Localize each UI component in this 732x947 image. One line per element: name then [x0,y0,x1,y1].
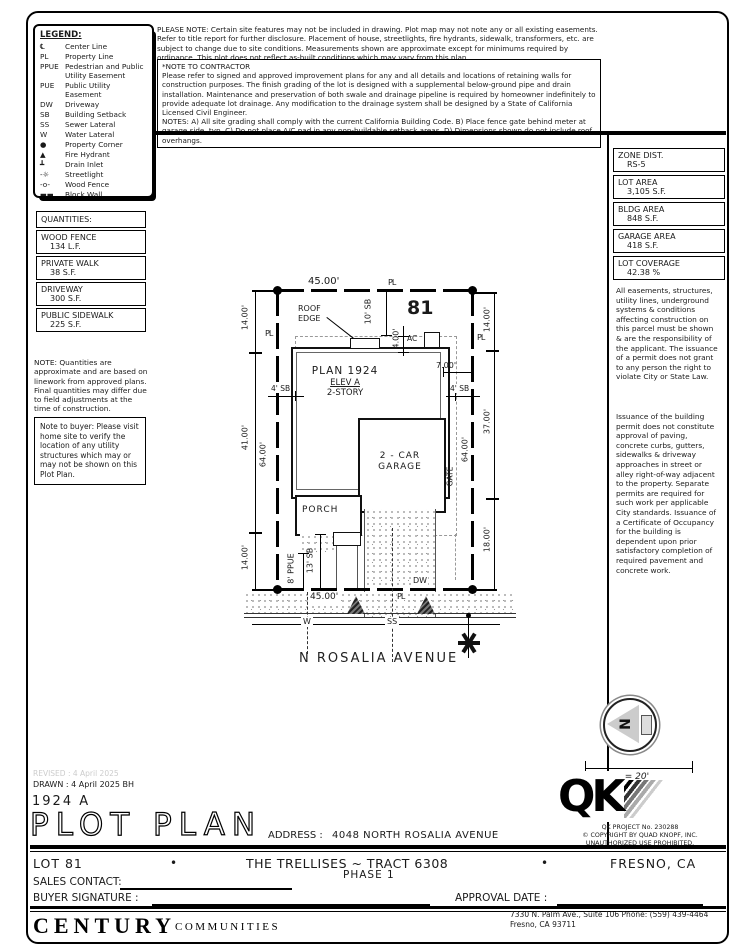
property-line-symbol: PL [40,52,65,61]
zone-row: LOT COVERAGE42.38 % [613,256,725,280]
office-address: 7330 N. Palm Ave., Suite 106 Phone: (559… [510,910,708,919]
legend-row: ┻Drain Inlet [40,160,147,169]
dim-tick [315,534,326,535]
please-note-text: PLEASE NOTE: Certain site features may n… [157,25,603,62]
dim-label-right-37: 37.00' [483,402,492,442]
zone-value: 3,105 S.F. [618,187,720,196]
legend-row: -o-Wood Fence [40,180,147,189]
legend-label: Property Corner [65,140,147,149]
city-label: FRESNO, CA [610,856,696,872]
dim-label-ppue: 8' PPUE [287,549,296,589]
water-symbol: W [40,130,65,139]
quantity-label: PRIVATE WALK [41,259,141,268]
driveway-label: DW [412,576,428,586]
legend-label: Fire Hydrant [65,150,147,159]
front-step [333,532,361,546]
zone-label: LOT COVERAGE [618,259,720,268]
roof-edge-bump [350,338,380,349]
property-line-bottom [278,588,473,591]
dim-tick [295,391,296,401]
legend-label: Water Lateral [65,130,147,139]
dim-label-left-14a: 14.00' [241,298,250,338]
dim-label-left-41: 41.00' [241,418,250,458]
header-separator-line [156,131,726,135]
separator-bullet: • [170,856,177,871]
legend-row: -☼Streetlight [40,170,147,179]
street-centerline [392,528,393,662]
buyer-signature-label: BUYER SIGNATURE : [33,892,139,905]
property-line-left [276,290,279,590]
curb-line [244,613,516,614]
legend-row: WWater Lateral [40,130,147,139]
sales-contact-label: SALES CONTACT: [33,876,122,889]
legend-row: PPUEPedestrian and Public Utility Easeme… [40,62,147,80]
sheet-title: PLOT PLAN [30,806,262,845]
legend-row: PUEPublic Utility Easement [40,81,147,99]
revised-line: REVISED : 4 April 2025 [33,769,119,778]
dim-label-sb4-right: 4' SB [450,384,469,393]
property-corner [468,286,477,295]
sewer-symbol: SS [40,120,65,129]
sb13-dim-line [320,534,321,589]
property-line-top [278,289,473,292]
ac-label: AC [407,334,417,343]
sb10-dim-line [386,291,387,336]
legend-label: Driveway [65,100,147,109]
dim-label-sb10: 10' SB [364,292,373,332]
plan-story: 2-STORY [300,388,390,399]
zone-label: ZONE DIST. [618,151,720,160]
permit-note: Issuance of the building permit does not… [616,412,720,575]
zone-label: BLDG AREA [618,205,720,214]
zone-value: RS-5 [618,160,720,169]
legend-row: SSSewer Lateral [40,120,147,129]
dim-tick [249,352,262,354]
sb4-left-dim-line [268,396,304,397]
dim-tick [381,291,392,292]
quantity-value: 38 S.F. [41,268,141,277]
sewer-main-line [252,624,500,625]
porch-label: PORCH [302,505,338,516]
pue-symbol: PUE [40,81,65,99]
legend-label: Building Setback [65,110,147,119]
legend-label: Block Wall [65,190,147,198]
drain-inlet-icon: ┻ [40,160,65,169]
dim-label-top: 45.00' [308,276,339,289]
pl-marker: PL [265,329,272,339]
legend-row: ℄Center Line [40,42,147,51]
office-city: Fresno, CA 93711 [510,920,576,929]
legend-label: Public Utility Easement [65,81,147,99]
legend-label: Streetlight [65,170,147,179]
zone-row: BLDG AREA848 S.F. [613,202,725,226]
quantities-title: QUANTITIES: [36,211,146,228]
legend-row: ●Property Corner [40,140,147,149]
driveway-symbol: DW [40,100,65,109]
quantities-table: QUANTITIES: WOOD FENCE134 L.F. PRIVATE W… [36,211,146,334]
ppue-symbol: PPUE [40,62,65,80]
dim-label-d7: 7.00' [436,361,456,371]
centerline-symbol: ℄ [40,42,65,51]
legend-label: Drain Inlet [65,160,147,169]
dim-label-left-64: 64.00' [259,435,268,475]
lot-number: 81 [407,297,433,321]
streetlight-base [466,613,471,618]
quantity-row: DRIVEWAY300 S.F. [36,282,146,306]
contractor-note-body: Please refer to signed and approved impr… [162,71,596,117]
dim-label-left-14b: 14.00' [241,538,250,578]
zone-label: GARAGE AREA [618,232,720,241]
dim-tick [471,367,472,377]
sales-contact-line [120,888,292,890]
dim-tick [486,498,499,500]
d7-dim-line [443,372,473,373]
legend-title: LEGEND: [40,30,147,40]
quantity-value: 134 L.F. [41,242,141,251]
ppue-dim-line [303,553,304,589]
quantity-row: WOOD FENCE134 L.F. [36,230,146,254]
dim-label-sb4-left: 4' SB [271,384,290,393]
quantity-value: 300 S.F. [41,294,141,303]
legend-row: PLProperty Line [40,52,147,61]
legend-row: ▲Fire Hydrant [40,150,147,159]
legend-label: Pedestrian and Public Utility Easement [65,62,147,80]
fire-hydrant-icon: ▲ [40,150,65,159]
legend-row: SBBuilding Setback [40,110,147,119]
dim-tick [472,391,473,401]
dim-label-bottom: 45.00' [308,592,340,603]
title-rule-thin [30,851,726,852]
quantity-row: PUBLIC SIDEWALK225 S.F. [36,308,146,332]
zone-label: LOT AREA [618,178,720,187]
buyer-note-text: Note to buyer: Please visit home site to… [40,422,140,480]
water-lateral-label: W [301,617,313,627]
north-letter: N [618,718,634,730]
dim-tick [473,292,497,294]
address-label: ADDRESS : [268,830,323,843]
qk-copyright2: UNAUTHORIZED USE PROHIBITED. [565,840,715,848]
pl-marker: PL [388,278,395,288]
roof-edge-label: ROOF EDGE [298,304,321,323]
dim-tick [252,290,278,292]
ac-unit [424,332,440,348]
dim-tick [381,335,392,336]
separator-bullet: • [541,856,548,871]
dim-line-left [255,290,256,590]
dim-label-right-64: 64.00' [461,430,470,470]
century-logo: CENTURY [33,912,176,940]
legend-label: Center Line [65,42,147,51]
property-corner-icon: ● [40,140,65,149]
quantity-value: 225 S.F. [41,320,141,329]
legend-label: Wood Fence [65,180,147,189]
drawn-line: DRAWN : 4 April 2025 BH [33,780,134,790]
quantity-label: DRIVEWAY [41,285,141,294]
communities-logo: COMMUNITIES [175,921,280,935]
public-sidewalk-concrete [244,592,516,613]
address-value: 4048 NORTH ROSALIA AVENUE [332,830,499,843]
legend-box: LEGEND: ℄Center Line PLProperty Line PPU… [33,24,154,198]
streetlight-icon: -☼ [40,170,65,179]
legend-row: ▬▬Block Wall [40,190,147,198]
legend-label: Sewer Lateral [65,120,147,129]
easements-note: All easements, structures, utility lines… [616,286,720,382]
dim-line-right [494,292,495,590]
qk-logo: QK [558,777,708,823]
qk-project-number: QK PROJECT No. 230288 [565,824,715,832]
plan-name: PLAN 1924 [300,365,390,378]
setback-symbol: SB [40,110,65,119]
quantity-label: PUBLIC SIDEWALK [41,311,141,320]
buyer-note-box: Note to buyer: Please visit home site to… [34,417,146,485]
qk-logo-text: QK [558,771,624,822]
sewer-lateral-label: SS [385,617,399,627]
pl-marker: PL [397,592,404,602]
qk-copyright: © COPYRIGHT BY QUAD KNOPF, INC. [565,832,715,840]
garage-label: 2 - CAR GARAGE [362,451,438,473]
north-arrow-tail [641,715,652,735]
zone-row: GARAGE AREA418 S.F. [613,229,725,253]
lot-label: LOT 81 [33,856,83,872]
scale-bar [585,768,693,769]
dim-tick [249,532,262,534]
scale-bar-tick [692,761,693,773]
zone-value: 418 S.F. [618,241,720,250]
dim-label-right-18: 18.00' [483,520,492,560]
footer-rule-thick [30,906,726,909]
dim-label-sb13: 13' SB [306,541,315,581]
legend-row: DWDriveway [40,100,147,109]
curb-line [244,617,516,618]
sb4-right-dim-line [446,396,480,397]
property-line-right [471,290,474,590]
north-arrow: N [603,698,657,752]
street-name: N ROSALIA AVENUE [299,651,458,667]
quantity-row: PRIVATE WALK38 S.F. [36,256,146,280]
gate-label: GATE [446,457,455,497]
zone-value: 848 S.F. [618,214,720,223]
wood-fence-icon: -o- [40,180,65,189]
zone-table: ZONE DIST.RS-5 LOT AREA3,105 S.F. BLDG A… [613,148,725,283]
phase-label: PHASE 1 [343,869,395,882]
dim-label-d4: 4.00' [392,319,401,359]
legend-label: Property Line [65,52,147,61]
quantity-label: WOOD FENCE [41,233,141,242]
contractor-note-title: *NOTE TO CONTRACTOR [162,62,596,71]
dim-tick [252,589,278,591]
zone-row: LOT AREA3,105 S.F. [613,175,725,199]
dim-tick [473,589,497,591]
zone-value: 42.38 % [618,268,720,277]
dim-tick [486,350,499,352]
setback-dashed-ext [455,534,456,580]
block-wall-icon: ▬▬ [40,190,65,198]
zone-row: ZONE DIST.RS-5 [613,148,725,172]
quantities-note: NOTE: Quantities are approximate and are… [34,358,150,414]
plot-plan-sheet: LEGEND: ℄Center Line PLProperty Line PPU… [0,0,732,947]
pl-marker: PL [477,333,484,343]
approval-date-label: APPROVAL DATE : [455,892,547,905]
